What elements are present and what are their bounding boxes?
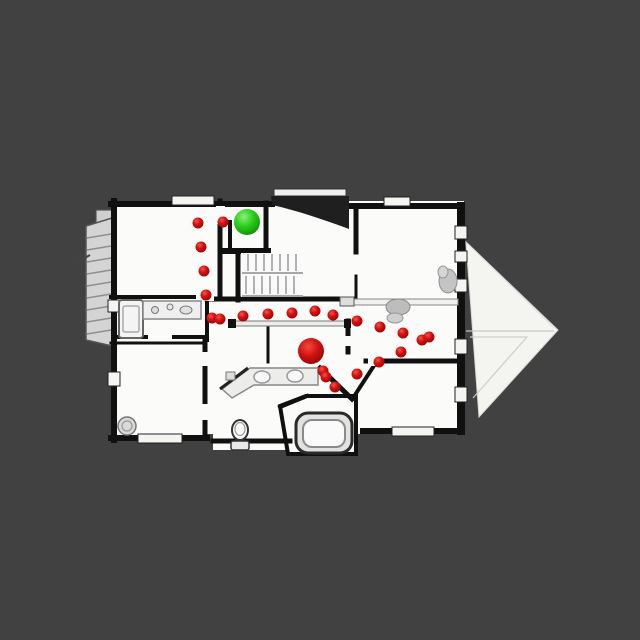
waypoint-dot xyxy=(287,308,298,319)
start-marker[interactable] xyxy=(234,209,260,235)
floorplan-map[interactable] xyxy=(0,0,640,640)
waypoint-dot xyxy=(398,328,409,339)
waypoint-dot xyxy=(352,369,363,380)
waypoint-dot xyxy=(352,316,363,327)
waypoint-dot xyxy=(201,290,212,301)
waypoint-dot xyxy=(328,310,339,321)
waypoint-dot xyxy=(199,266,210,277)
floor-slab xyxy=(111,201,464,454)
waypoint-dot xyxy=(310,306,321,317)
waypoint-dot xyxy=(424,332,435,343)
waypoint-dot xyxy=(374,357,385,368)
waypoint-dot xyxy=(321,372,332,383)
goal-marker[interactable] xyxy=(298,338,324,364)
staircase xyxy=(241,253,303,297)
waypoint-dot xyxy=(375,322,386,333)
waypoint-dot xyxy=(330,382,341,393)
toilet xyxy=(231,420,249,450)
viewport xyxy=(0,0,640,640)
bathtub xyxy=(296,413,352,453)
waypoint-dot xyxy=(238,311,249,322)
waypoint-dot xyxy=(263,309,274,320)
waypoint-dot xyxy=(215,314,226,325)
waypoint-dot xyxy=(196,242,207,253)
waypoint-dot xyxy=(193,218,204,229)
waypoint-dot xyxy=(218,217,229,228)
waypoint-dot xyxy=(396,347,407,358)
